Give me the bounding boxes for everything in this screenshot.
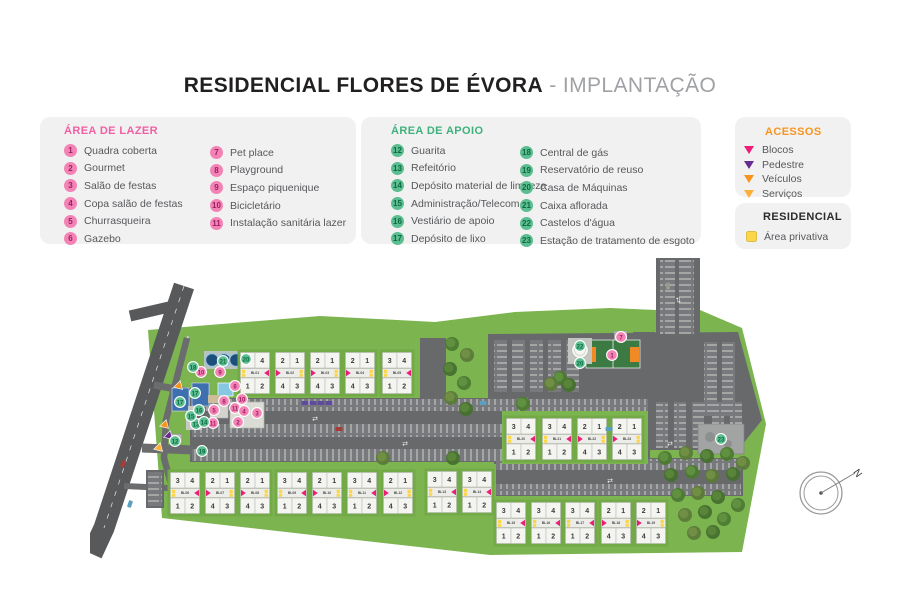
- private-area-marker: [384, 374, 387, 377]
- tree: [664, 468, 678, 482]
- parked-car: [127, 500, 133, 508]
- map-marker-17: 17: [175, 397, 186, 408]
- page-title: RESIDENCIAL FLORES DE ÉVORA - IMPLANTAÇÃ…: [0, 74, 900, 98]
- private-area-marker: [508, 440, 511, 443]
- unit-number: 3: [332, 504, 336, 511]
- project-name: RESIDENCIAL FLORES DE ÉVORA: [184, 74, 543, 97]
- legend-number-badge: 5: [64, 215, 77, 228]
- unit-number: 3: [502, 508, 506, 515]
- residential-block-BL08: 2143BL08: [238, 470, 273, 517]
- svg-text:⇄: ⇄: [607, 478, 613, 485]
- legend-item-label: Refeitório: [411, 162, 456, 174]
- residential-block-BL17: 3412BL17: [563, 500, 598, 547]
- unit-number: 1: [597, 424, 601, 431]
- unit-number: 4: [618, 450, 622, 457]
- unit-number: 2: [447, 503, 451, 510]
- block-label: BL17: [576, 521, 584, 525]
- legend-item-label: Quadra coberta: [84, 145, 157, 157]
- legend-residencial: RESIDENCIAL Área privativa: [735, 203, 851, 249]
- unit-number: 1: [260, 478, 264, 485]
- unit-number: 1: [656, 508, 660, 515]
- tree: [698, 505, 712, 519]
- unit-number: 4: [585, 508, 589, 515]
- map-marker-number: 22: [577, 344, 584, 350]
- map-marker-number: 17: [177, 400, 184, 406]
- map-marker-number: 15: [188, 414, 195, 420]
- map-marker-23: 23: [716, 434, 727, 445]
- unit-number: 4: [318, 504, 322, 511]
- unit-number: 2: [482, 503, 486, 510]
- legend-item-label: Playground: [230, 164, 283, 176]
- unit-number: 3: [295, 384, 299, 391]
- map-marker-19: 19: [197, 446, 208, 457]
- svg-text:⇄: ⇄: [674, 297, 681, 303]
- legend-item-lazer-4: 4Copa salão de festas: [64, 195, 183, 213]
- legend-item-acesso-pedestre: Pedestre: [743, 158, 847, 173]
- unit-number: 4: [562, 424, 566, 431]
- legend-item-label: Serviços: [762, 188, 802, 200]
- tree: [678, 508, 692, 522]
- tree: [516, 397, 530, 411]
- legend-number-badge: 21: [520, 199, 533, 212]
- map-marker-number: 21: [220, 359, 227, 365]
- unit-number: 3: [388, 358, 392, 365]
- map-marker-number: 19: [199, 449, 206, 455]
- map-marker-number: 17: [192, 391, 199, 397]
- residential-block-BL02: 2143BL02: [273, 350, 308, 397]
- parked-car: [666, 283, 670, 290]
- residential-block-BL09: 3412BL09: [275, 470, 310, 517]
- legend-item-label: Instalação sanitária lazer: [230, 217, 346, 229]
- unit-number: 1: [283, 504, 287, 511]
- unit-number: 4: [402, 358, 406, 365]
- unit-number: 3: [512, 424, 516, 431]
- private-area-marker: [230, 490, 233, 493]
- residential-block-BL18: 2143BL18: [599, 500, 634, 547]
- legend-item-label: Veículos: [762, 173, 802, 185]
- parked-car: [310, 401, 317, 405]
- block-label: BL11: [358, 491, 366, 495]
- unit-number: 2: [281, 358, 285, 365]
- unit-number: 3: [260, 504, 264, 511]
- unit-number: 4: [246, 504, 250, 511]
- legend-number-badge: 18: [520, 146, 533, 159]
- unit-number: 1: [548, 450, 552, 457]
- legend-residencial-list: Área privativa: [746, 228, 847, 246]
- legend-number-badge: 9: [210, 181, 223, 194]
- unit-number: 1: [176, 504, 180, 511]
- legend-item-label: Administração/Telecom: [411, 198, 520, 210]
- map-marker-number: 20: [577, 361, 584, 367]
- private-area-marker: [337, 494, 340, 497]
- map-marker-16: 16: [194, 405, 205, 416]
- unit-number: 4: [351, 384, 355, 391]
- legend-number-badge: 8: [210, 164, 223, 177]
- unit-number: 1: [403, 478, 407, 485]
- private-area-marker: [384, 370, 387, 373]
- block-label: BL04: [356, 371, 364, 375]
- title-separator: -: [543, 74, 563, 97]
- block-label: BL20: [517, 437, 525, 441]
- tree: [685, 465, 699, 479]
- map-marker-17: 17: [190, 388, 201, 399]
- map-marker-9: 9: [215, 367, 226, 378]
- unit-number: 3: [468, 477, 472, 484]
- implantacao-page: RESIDENCIAL FLORES DE ÉVORA - IMPLANTAÇÃ…: [0, 0, 900, 600]
- map-marker-14: 14: [199, 417, 210, 428]
- reservoir-tank: [206, 354, 219, 367]
- legend-number-badge: 19: [520, 164, 533, 177]
- legend-item-label: Área privativa: [764, 231, 828, 243]
- unit-number: 3: [621, 534, 625, 541]
- private-area-marker: [661, 524, 664, 527]
- unit-number: 4: [526, 424, 530, 431]
- legend-item-apoio-19: 19Reservatório de reuso: [520, 162, 695, 180]
- legend-item-label: Salão de festas: [84, 180, 156, 192]
- private-area-marker: [370, 370, 373, 373]
- legend-item-apoio-20: 20Casa de Máquinas: [520, 179, 695, 197]
- residential-block-BL04: 2143BL04: [343, 350, 378, 397]
- legend-apoio-header: ÁREA DE APOIO: [391, 125, 546, 137]
- private-area-marker: [242, 370, 245, 373]
- parked-car: [326, 401, 333, 405]
- svg-text:⇄: ⇄: [667, 441, 673, 448]
- unit-number: 3: [433, 477, 437, 484]
- residential-block-BL12: 2143BL12: [381, 470, 416, 517]
- private-area-marker: [300, 370, 303, 373]
- map-marker-number: 10: [198, 370, 205, 376]
- map-marker-number: 12: [172, 439, 179, 445]
- block-label: BL06: [181, 491, 189, 495]
- unit-number: 1: [330, 358, 334, 365]
- unit-number: 3: [548, 424, 552, 431]
- tree: [444, 391, 458, 405]
- residential-block-BL13: 3412BL13: [425, 469, 460, 516]
- tree: [460, 348, 474, 362]
- private-area-marker: [349, 490, 352, 493]
- legend-item-apoio-22: 22Castelos d'água: [520, 214, 695, 232]
- block-label: BL07: [216, 491, 224, 495]
- legend-number-badge: 1: [64, 144, 77, 157]
- block-label: BL23: [623, 437, 631, 441]
- private-area-marker: [544, 440, 547, 443]
- tree: [376, 451, 390, 465]
- private-area-marker: [172, 490, 175, 493]
- block-label: BL18: [612, 521, 620, 525]
- residential-block-BL15: 3412BL15: [494, 500, 529, 547]
- servicos-triangle-icon: [744, 190, 754, 198]
- unit-number: 4: [482, 477, 486, 484]
- private-area-marker: [265, 490, 268, 493]
- block-label: BL21: [553, 437, 561, 441]
- private-area-marker: [242, 374, 245, 377]
- unit-number: 1: [621, 508, 625, 515]
- svg-text:⇄: ⇄: [402, 441, 408, 448]
- residential-block-BL03: 2143BL03: [308, 350, 343, 397]
- legend-item-lazer-6: 6Gazebo: [64, 230, 183, 248]
- private-area-marker: [279, 490, 282, 493]
- map-marker-number: 16: [196, 408, 203, 414]
- unit-number: 3: [176, 478, 180, 485]
- unit-number: 1: [295, 358, 299, 365]
- residential-block-BL10: 2143BL10: [310, 470, 345, 517]
- block-label: BL09: [288, 491, 296, 495]
- unit-number: 2: [618, 424, 622, 431]
- sewage-tank: [705, 432, 715, 442]
- unit-number: 2: [551, 534, 555, 541]
- residential-block-BL05: 3412BL05: [380, 350, 415, 397]
- tree: [691, 486, 705, 500]
- private-area-marker: [637, 440, 640, 443]
- legend-lazer-header: ÁREA DE LAZER: [64, 125, 183, 137]
- unit-number: 4: [583, 450, 587, 457]
- legend-area-de-apoio: ÁREA DE APOIO 12Guarita13Refeitório14Dep…: [361, 117, 701, 244]
- private-area-marker: [626, 524, 629, 527]
- private-area-marker: [300, 374, 303, 377]
- legend-item-lazer-1: 1Quadra coberta: [64, 142, 183, 160]
- legend-number-badge: 2: [64, 162, 77, 175]
- unit-number: 3: [365, 384, 369, 391]
- map-marker-1: 1: [607, 350, 618, 361]
- legend-item-label: Castelos d'água: [540, 217, 615, 229]
- site-plan-map: ⇄⇄ ⇄⇄ ⇄ ⇄: [90, 252, 770, 582]
- legend-number-badge: 3: [64, 179, 77, 192]
- block-label: BL05: [393, 371, 401, 375]
- private-area-marker: [602, 440, 605, 443]
- private-area-marker: [567, 524, 570, 527]
- unit-number: 2: [402, 384, 406, 391]
- private-area-marker: [602, 436, 605, 439]
- unit-number: 2: [607, 508, 611, 515]
- unit-number: 3: [597, 450, 601, 457]
- residential-block-BL21: 3412BL21: [540, 416, 575, 463]
- private-area-marker: [265, 494, 268, 497]
- map-marker-number: 11: [210, 421, 217, 427]
- map-marker-4: 4: [239, 406, 250, 417]
- unit-number: 4: [190, 478, 194, 485]
- unit-number: 2: [318, 478, 322, 485]
- map-marker-number: 14: [201, 420, 208, 426]
- unit-number: 1: [332, 478, 336, 485]
- block-label: BL02: [286, 371, 294, 375]
- legend-acessos: ACESSOS BlocosPedestreVeículosServiços: [735, 117, 851, 197]
- vertical-road-1: [420, 338, 446, 400]
- unit-number: 1: [502, 534, 506, 541]
- unit-number: 2: [389, 478, 393, 485]
- map-marker-number: 23: [718, 437, 725, 443]
- unit-number: 3: [632, 450, 636, 457]
- legend-area-de-lazer: ÁREA DE LAZER 1Quadra coberta2Gourmet3Sa…: [40, 117, 356, 244]
- unit-number: 3: [330, 384, 334, 391]
- unit-number: 2: [585, 534, 589, 541]
- legend-number-badge: 23: [520, 234, 533, 247]
- tree: [700, 449, 714, 463]
- legend-item-apoio-21: 21Caixa aflorada: [520, 197, 695, 215]
- legend-item-label: Depósito de lixo: [411, 233, 486, 245]
- unit-number: 3: [537, 508, 541, 515]
- residential-block-BL16: 3412BL16: [529, 500, 564, 547]
- map-marker-12: 12: [170, 436, 181, 447]
- unit-number: 4: [211, 504, 215, 511]
- tree: [445, 337, 459, 351]
- unit-number: 3: [656, 534, 660, 541]
- unit-number: 2: [351, 358, 355, 365]
- tree: [717, 512, 731, 526]
- private-area-marker: [429, 489, 432, 492]
- private-area-marker: [349, 494, 352, 497]
- parked-car: [336, 427, 343, 431]
- private-area-marker: [626, 520, 629, 523]
- pedestre-triangle-icon: [744, 161, 754, 169]
- block-label: BL15: [507, 521, 515, 525]
- legend-number-badge: 16: [391, 215, 404, 228]
- unit-number: 1: [225, 478, 229, 485]
- legend-number-badge: 14: [391, 179, 404, 192]
- unit-number: 4: [607, 534, 611, 541]
- tree: [457, 376, 471, 390]
- private-area-swatch-icon: [746, 231, 757, 242]
- legend-item-apoio-23: 23Estação de tratamento de esgoto: [520, 232, 695, 250]
- legend-item-label: Blocos: [762, 144, 794, 156]
- map-marker-20: 20: [241, 354, 252, 365]
- unit-number: 1: [468, 503, 472, 510]
- unit-number: 1: [512, 450, 516, 457]
- unit-number: 4: [516, 508, 520, 515]
- map-marker-7: 7: [616, 332, 627, 343]
- legend-residencial-header: RESIDENCIAL: [746, 211, 847, 223]
- legend-item-label: Vestiário de apoio: [411, 215, 494, 227]
- parked-car: [606, 427, 613, 431]
- unit-number: 2: [246, 478, 250, 485]
- unit-number: 2: [526, 450, 530, 457]
- block-label: BL01: [251, 371, 259, 375]
- legend-item-label: Estação de tratamento de esgoto: [540, 235, 695, 247]
- legend-number-badge: 13: [391, 162, 404, 175]
- legend-item-lazer-10: 10Bicicletário: [210, 197, 346, 215]
- legend-number-badge: 22: [520, 217, 533, 230]
- block-label: BL16: [542, 521, 550, 525]
- private-area-marker: [429, 493, 432, 496]
- private-area-marker: [370, 374, 373, 377]
- unit-number: 4: [297, 478, 301, 485]
- map-marker-number: 10: [239, 397, 246, 403]
- private-area-marker: [337, 490, 340, 493]
- legend-number-badge: 12: [391, 144, 404, 157]
- block-label: BL22: [588, 437, 596, 441]
- legend-item-label: Pet place: [230, 147, 274, 159]
- legend-item-lazer-11: 11Instalação sanitária lazer: [210, 214, 346, 232]
- block-label: BL13: [438, 490, 446, 494]
- unit-number: 1: [246, 384, 250, 391]
- tree: [706, 525, 720, 539]
- unit-number: 3: [283, 478, 287, 485]
- tree: [544, 377, 558, 391]
- veiculos-triangle-icon: [744, 175, 754, 183]
- legend-item-label: Gourmet: [84, 162, 125, 174]
- private-area-marker: [230, 494, 233, 497]
- parked-car: [480, 401, 487, 405]
- private-area-marker: [661, 520, 664, 523]
- block-label: BL14: [473, 490, 481, 494]
- blocos-triangle-icon: [744, 146, 754, 154]
- tree: [562, 378, 576, 392]
- block-label: BL19: [647, 521, 655, 525]
- unit-number: 2: [516, 534, 520, 541]
- block-label: BL08: [251, 491, 259, 495]
- legend-apoio-col2: 18Central de gás19Reservatório de reuso2…: [520, 144, 695, 250]
- block-label: BL03: [321, 371, 329, 375]
- unit-number: 3: [353, 478, 357, 485]
- private-area-marker: [533, 520, 536, 523]
- tree: [446, 451, 460, 465]
- legend-item-privativa: Área privativa: [746, 228, 847, 246]
- legend-item-lazer-5: 5Churrasqueira: [64, 212, 183, 230]
- private-area-marker: [335, 374, 338, 377]
- entry-lane-gate: [142, 448, 194, 450]
- legend-item-label: Caixa aflorada: [540, 200, 608, 212]
- tree: [459, 402, 473, 416]
- unit-number: 4: [281, 384, 285, 391]
- block-label: BL10: [323, 491, 331, 495]
- legend-item-label: Guarita: [411, 145, 445, 157]
- legend-item-lazer-9: 9Espaço piquenique: [210, 179, 346, 197]
- map-marker-3: 3: [252, 408, 263, 419]
- map-marker-8: 8: [219, 396, 230, 407]
- private-area-marker: [508, 436, 511, 439]
- private-area-marker: [408, 494, 411, 497]
- legend-number-badge: 4: [64, 197, 77, 210]
- legend-item-acesso-blocos: Blocos: [743, 143, 847, 158]
- legend-item-acesso-servicos: Serviços: [743, 187, 847, 202]
- legend-item-lazer-3: 3Salão de festas: [64, 177, 183, 195]
- legend-item-label: Pedestre: [762, 159, 804, 171]
- title-subtitle: IMPLANTAÇÃO: [563, 74, 716, 97]
- block-label: BL12: [394, 491, 402, 495]
- legend-item-acesso-veiculos: Veículos: [743, 172, 847, 187]
- legend-item-label: Reservatório de reuso: [540, 164, 643, 176]
- residential-block-BL07: 2143BL07: [203, 470, 238, 517]
- parked-car: [302, 401, 309, 405]
- tree: [736, 456, 750, 470]
- legend-number-badge: 15: [391, 197, 404, 210]
- unit-number: 1: [537, 534, 541, 541]
- legend-item-label: Central de gás: [540, 147, 608, 159]
- unit-number: 2: [260, 384, 264, 391]
- legend-number-badge: 20: [520, 181, 533, 194]
- unit-number: 1: [571, 534, 575, 541]
- unit-number: 1: [353, 504, 357, 511]
- residential-block-BL19: 2143BL19: [634, 500, 669, 547]
- unit-number: 2: [562, 450, 566, 457]
- private-area-marker: [464, 489, 467, 492]
- legend-item-lazer-7: 7Pet place: [210, 144, 346, 162]
- unit-number: 2: [583, 424, 587, 431]
- map-marker-5: 5: [209, 405, 220, 416]
- map-marker-18: 18: [188, 362, 199, 373]
- unit-number: 1: [433, 503, 437, 510]
- residential-block-BL20: 3412BL20: [504, 416, 539, 463]
- unit-number: 2: [211, 478, 215, 485]
- legend-item-label: Gazebo: [84, 233, 121, 245]
- legend-number-badge: 11: [210, 217, 223, 230]
- private-area-marker: [498, 524, 501, 527]
- private-area-marker: [637, 436, 640, 439]
- tree: [679, 446, 693, 460]
- map-marker-number: 20: [243, 357, 250, 363]
- tree: [687, 526, 701, 540]
- legend-item-label: Churrasqueira: [84, 215, 151, 227]
- legend-acessos-header: ACESSOS: [743, 126, 847, 138]
